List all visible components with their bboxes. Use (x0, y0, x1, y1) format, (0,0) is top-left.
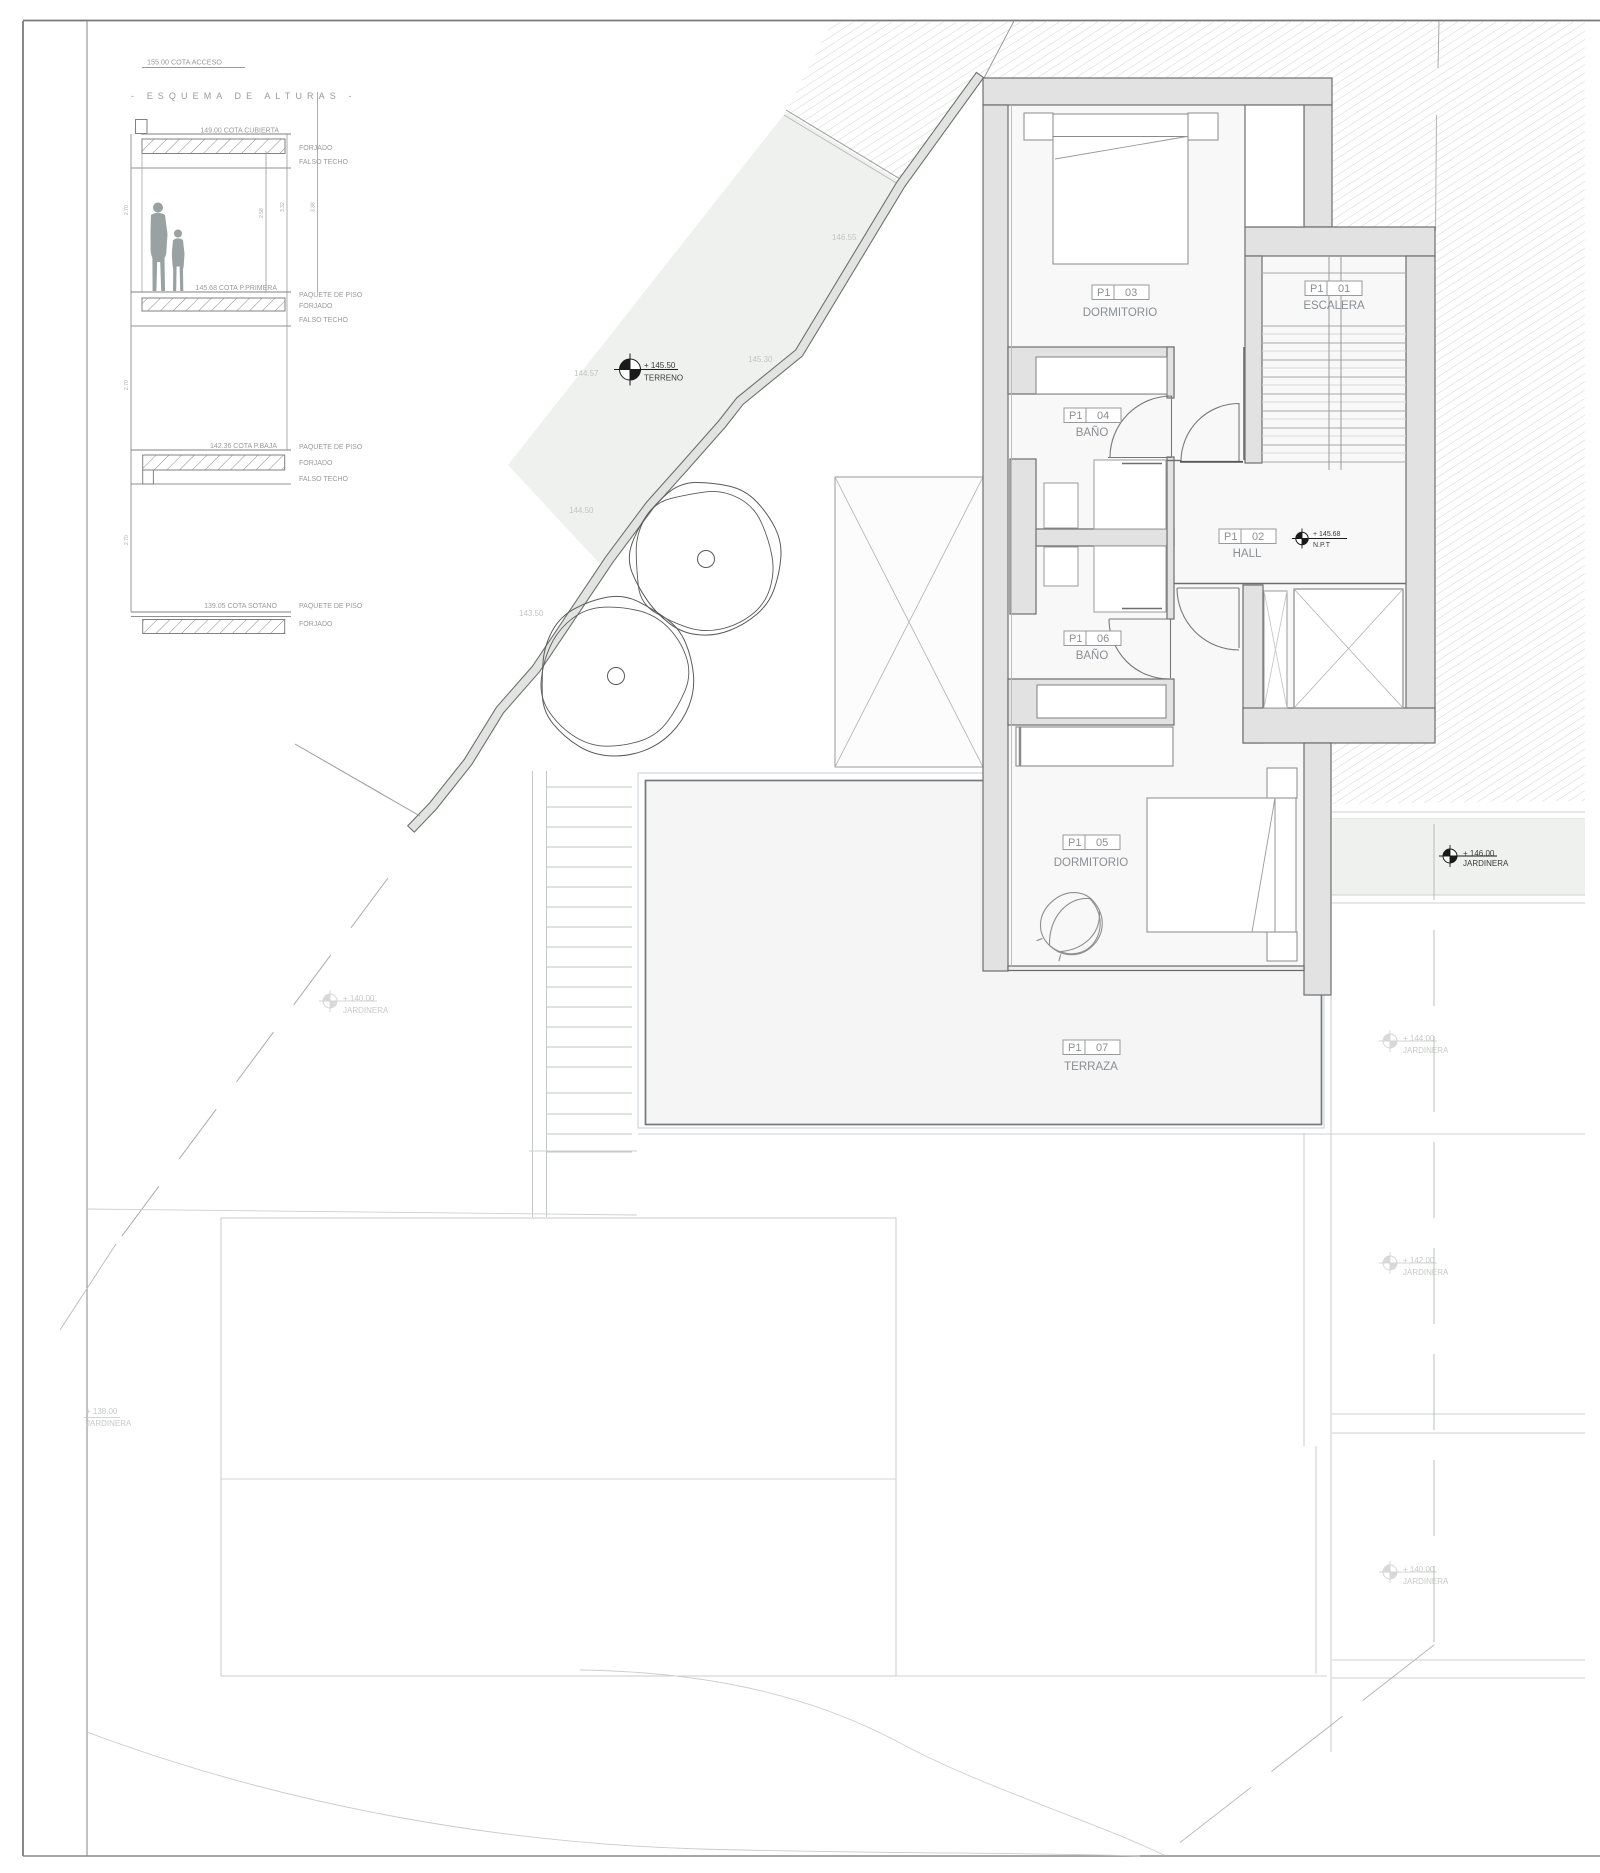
svg-text:01: 01 (1338, 283, 1350, 295)
svg-text:P1: P1 (1069, 410, 1082, 422)
svg-text:TERRENO: TERRENO (644, 374, 683, 383)
svg-text:FORJADO: FORJADO (299, 621, 333, 628)
svg-text:DORMITORIO: DORMITORIO (1083, 307, 1158, 319)
svg-text:JARDINERA: JARDINERA (1403, 1268, 1449, 1277)
svg-text:144.50: 144.50 (569, 506, 594, 515)
svg-text:P1: P1 (1097, 287, 1110, 299)
svg-text:FORJADO: FORJADO (299, 303, 333, 310)
svg-text:JARDINERA: JARDINERA (86, 1419, 132, 1428)
svg-text:FALSO TECHO: FALSO TECHO (299, 476, 348, 483)
svg-text:N.P.T: N.P.T (1313, 542, 1331, 549)
svg-text:2.70: 2.70 (124, 380, 130, 390)
svg-text:144.57: 144.57 (574, 369, 599, 378)
svg-text:2.58: 2.58 (259, 208, 265, 218)
svg-text:+ 145.68: + 145.68 (1313, 531, 1341, 538)
svg-text:07: 07 (1096, 1042, 1108, 1054)
svg-text:FALSO TECHO: FALSO TECHO (299, 159, 348, 166)
svg-text:+ 144.00: + 144.00 (1403, 1034, 1435, 1043)
svg-text:2.70: 2.70 (124, 205, 130, 215)
svg-text:03: 03 (1125, 287, 1137, 299)
svg-text:JARDINERA: JARDINERA (1403, 1577, 1449, 1586)
svg-text:DORMITORIO: DORMITORIO (1054, 857, 1129, 869)
svg-text:3.32: 3.32 (280, 202, 286, 212)
svg-text:P1: P1 (1069, 633, 1082, 645)
svg-text:BAÑO: BAÑO (1076, 426, 1109, 439)
svg-text:BAÑO: BAÑO (1076, 649, 1109, 662)
svg-text:02: 02 (1252, 531, 1264, 543)
svg-text:+ 138.00: + 138.00 (86, 1407, 118, 1416)
svg-text:P1: P1 (1310, 283, 1323, 295)
svg-text:PAQUETE DE PISO: PAQUETE DE PISO (299, 603, 363, 610)
svg-text:145.68 COTA P.PRIMERA: 145.68 COTA P.PRIMERA (196, 285, 278, 292)
svg-text:+ 140.00: + 140.00 (1403, 1565, 1435, 1574)
svg-text:P1: P1 (1068, 1042, 1081, 1054)
svg-text:06: 06 (1097, 633, 1109, 645)
svg-text:+ 140.00: + 140.00 (343, 994, 375, 1003)
svg-text:PAQUETE DE PISO: PAQUETE DE PISO (299, 292, 363, 299)
svg-text:TERRAZA: TERRAZA (1064, 1061, 1118, 1073)
svg-text:FALSO TECHO: FALSO TECHO (299, 317, 348, 324)
svg-text:145.30: 145.30 (748, 355, 773, 364)
svg-text:FORJADO: FORJADO (299, 145, 333, 152)
svg-text:05: 05 (1096, 837, 1108, 849)
svg-text:+ 142.00: + 142.00 (1403, 1256, 1435, 1265)
svg-text:+ 145.50: + 145.50 (644, 361, 676, 370)
svg-text:P1: P1 (1224, 531, 1237, 543)
svg-text:143.50: 143.50 (519, 609, 544, 618)
svg-text:139.05 COTA SOTANO: 139.05 COTA SOTANO (204, 603, 277, 610)
svg-text:JARDINERA: JARDINERA (1403, 1046, 1449, 1055)
svg-text:JARDINERA: JARDINERA (1463, 859, 1509, 868)
svg-text:PAQUETE DE PISO: PAQUETE DE PISO (299, 444, 363, 451)
svg-text:3.38: 3.38 (311, 202, 317, 212)
svg-text:155.00 COTA ACCESO: 155.00 COTA ACCESO (147, 58, 222, 67)
svg-text:04: 04 (1097, 410, 1109, 422)
svg-text:P1: P1 (1068, 837, 1081, 849)
svg-text:HALL: HALL (1233, 548, 1262, 560)
svg-text:146.55: 146.55 (832, 233, 857, 242)
svg-text:149.00 COTA CUBIERTA: 149.00 COTA CUBIERTA (200, 128, 279, 135)
svg-text:142.36 COTA P.BAJA: 142.36 COTA P.BAJA (210, 443, 277, 450)
svg-text:ESCALERA: ESCALERA (1303, 300, 1365, 312)
svg-text:JARDINERA: JARDINERA (343, 1006, 389, 1015)
svg-text:2.70: 2.70 (124, 535, 130, 545)
svg-text:- ESQUEMA DE ALTURAS -: - ESQUEMA DE ALTURAS - (131, 91, 357, 101)
svg-text:FORJADO: FORJADO (299, 460, 333, 467)
svg-text:+ 146.00: + 146.00 (1463, 849, 1495, 858)
